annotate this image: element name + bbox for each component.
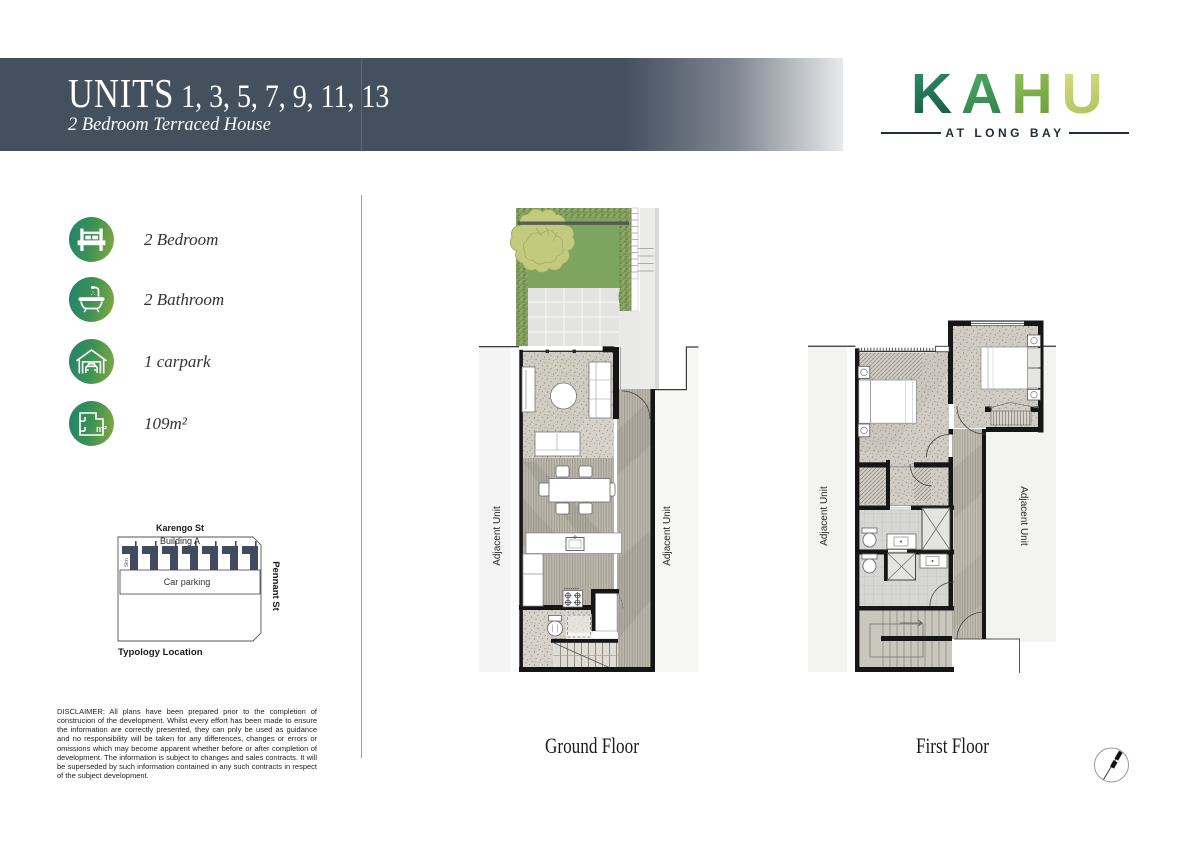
svg-text:Adjacent Unit: Adjacent Unit (492, 506, 503, 566)
svg-text:Pennant St: Pennant St (270, 561, 281, 611)
svg-text:m²: m² (96, 424, 107, 434)
svg-text:5lm: 5lm (124, 558, 130, 567)
svg-text:Adjacent Unit: Adjacent Unit (819, 486, 830, 546)
svg-text:Adjacent Unit: Adjacent Unit (1018, 486, 1029, 546)
svg-text:Typology Location: Typology Location (118, 647, 203, 658)
svg-text:Karengo St: Karengo St (156, 523, 204, 533)
svg-text:Building A: Building A (160, 536, 200, 546)
svg-text:Adjacent Unit: Adjacent Unit (662, 506, 673, 566)
svg-text:Car parking: Car parking (164, 577, 211, 587)
